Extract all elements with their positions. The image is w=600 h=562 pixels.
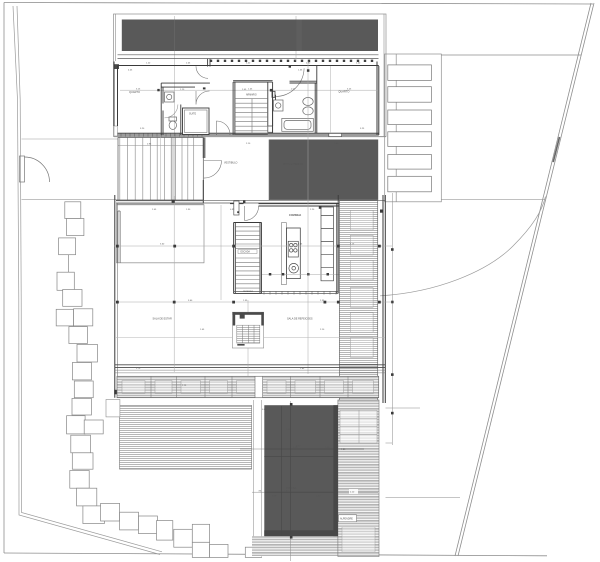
svg-text:QUARTO: QUARTO [129,90,140,94]
svg-text:ARMARIO: ARMARIO [246,94,257,97]
svg-text:COZINHA: COZINHA [289,213,301,217]
svg-text:SALA DE ESTAR: SALA DE ESTAR [153,318,172,321]
svg-text:SALA DE REFEICOES: SALA DE REFEICOES [287,318,313,321]
svg-text:SUITE: SUITE [189,113,196,116]
svg-text:PATIO EXTERIOR: PATIO EXTERIOR [283,163,303,166]
svg-text:ESCADA: ESCADA [241,251,251,254]
svg-text:QUARTO: QUARTO [338,90,349,94]
svg-text:VESTIBULO: VESTIBULO [224,161,238,164]
svg-text:ALPENDRE: ALPENDRE [340,518,353,521]
